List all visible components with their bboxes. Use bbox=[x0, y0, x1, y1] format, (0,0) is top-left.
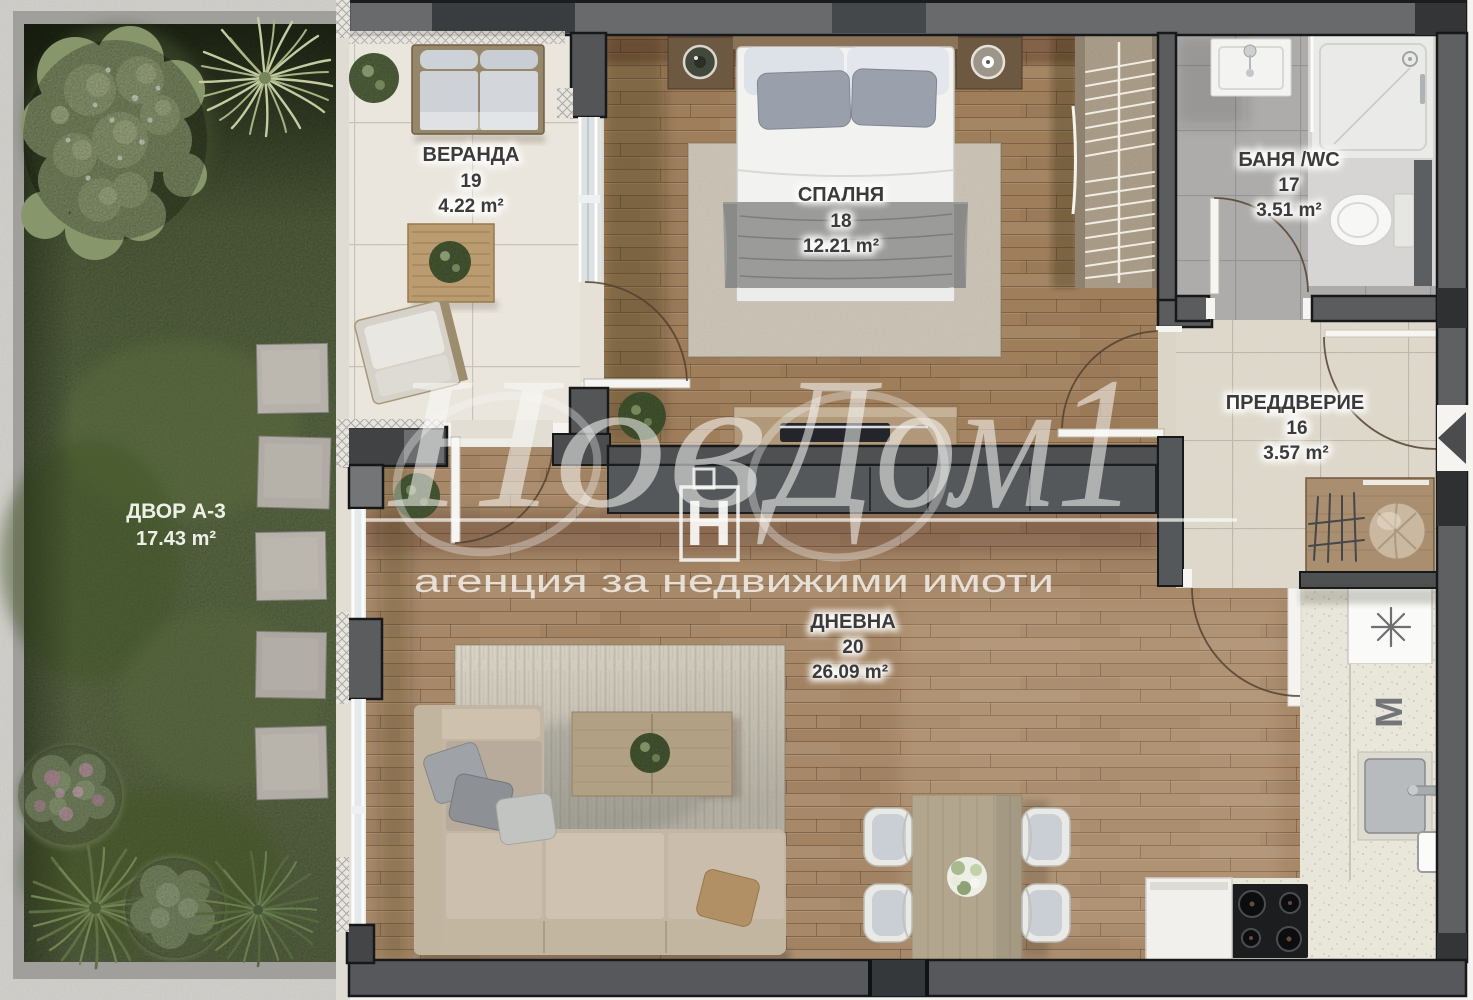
svg-text:12.21 m²: 12.21 m² bbox=[803, 236, 879, 257]
svg-text:агенция за недвижими имоти: агенция за недвижими имоти bbox=[414, 563, 1054, 599]
svg-text:БАНЯ /WC: БАНЯ /WC bbox=[1238, 149, 1339, 171]
svg-text:СПАЛНЯ: СПАЛНЯ bbox=[798, 184, 884, 206]
svg-text:ВЕРАНДА: ВЕРАНДА bbox=[423, 144, 520, 166]
svg-text:Дом1: Дом1 bbox=[757, 338, 1138, 547]
svg-text:26.09 m²: 26.09 m² bbox=[812, 662, 888, 683]
svg-text:20: 20 bbox=[842, 637, 863, 658]
svg-text:3.57 m²: 3.57 m² bbox=[1263, 443, 1328, 464]
svg-text:16: 16 bbox=[1286, 418, 1307, 439]
svg-text:ДНЕВНА: ДНЕВНА bbox=[810, 611, 895, 633]
svg-text:19: 19 bbox=[460, 171, 481, 192]
svg-text:17.43 m²: 17.43 m² bbox=[136, 528, 216, 550]
svg-text:17: 17 bbox=[1278, 175, 1299, 196]
svg-text:4.22 m²: 4.22 m² bbox=[438, 196, 503, 217]
svg-text:3.51 m²: 3.51 m² bbox=[1256, 200, 1321, 221]
svg-text:ПРЕДДВЕРИЕ: ПРЕДДВЕРИЕ bbox=[1226, 392, 1364, 414]
svg-text:H: H bbox=[686, 487, 732, 559]
svg-text:M: M bbox=[1369, 696, 1411, 728]
svg-text:18: 18 bbox=[830, 211, 851, 232]
svg-text:ДВОР А-3: ДВОР А-3 bbox=[126, 500, 226, 523]
